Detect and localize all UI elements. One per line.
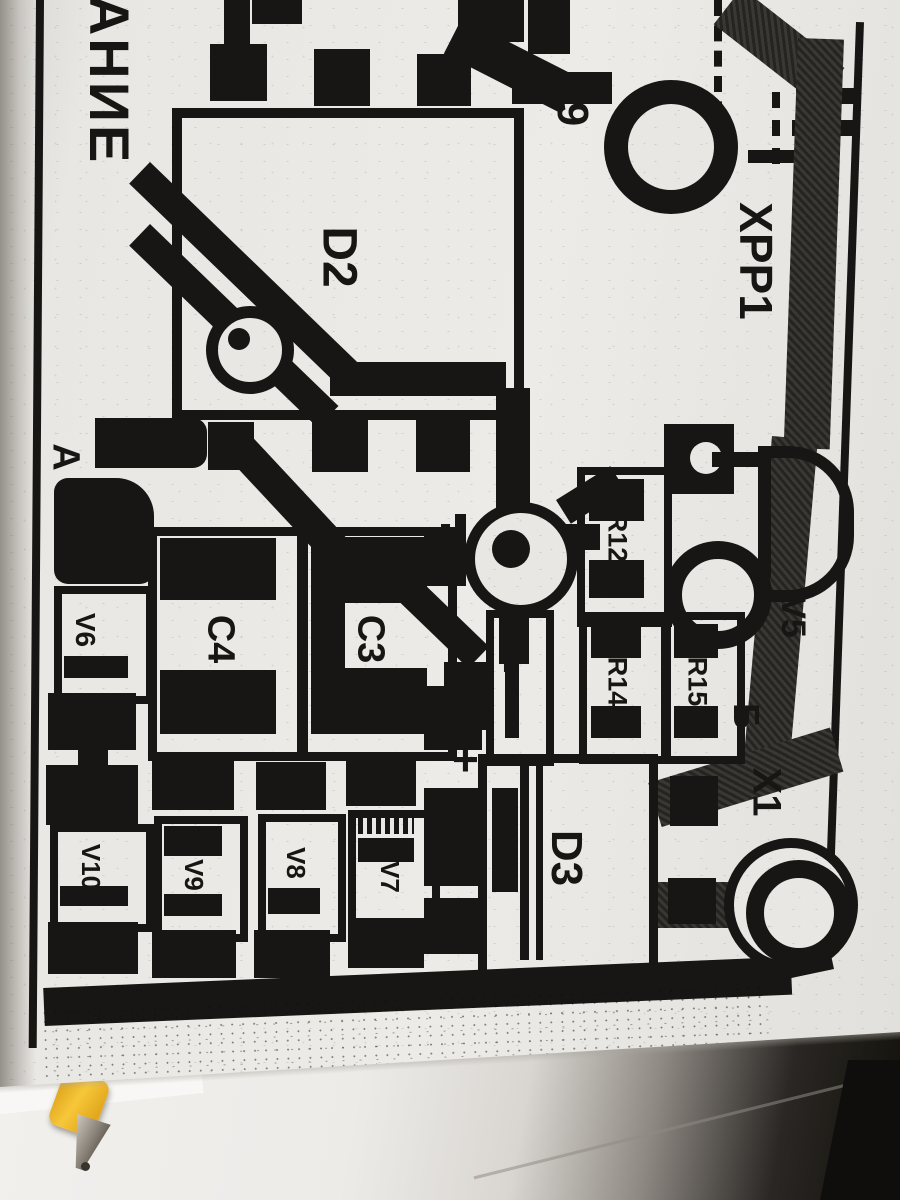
- c3-plate: [311, 668, 427, 734]
- solder-pad: [668, 878, 716, 924]
- label-d3: D3: [544, 830, 588, 886]
- component-v6: [54, 586, 154, 704]
- d3-fill: [492, 788, 518, 892]
- trace-blob: [54, 478, 154, 584]
- solder-pad: [254, 930, 330, 978]
- pcb-printed-page: ПИТАНИЕ 9 XPP1 D2: [0, 0, 900, 1100]
- trace: [496, 388, 530, 508]
- solder-pad: [46, 765, 138, 825]
- r15-pad: [674, 706, 718, 738]
- r14-pad: [591, 706, 641, 738]
- label-v10: V10: [78, 844, 104, 890]
- v9-pad: [164, 826, 222, 856]
- label-v6: V6: [71, 613, 99, 647]
- label-r3: R3: [499, 652, 521, 702]
- solder-pad: [528, 0, 570, 54]
- c4-plate: [160, 538, 276, 600]
- v9-pad: [164, 894, 222, 916]
- solder-pad: [256, 762, 326, 810]
- v6-pad: [64, 656, 128, 678]
- label-v9: V9: [181, 859, 207, 891]
- label-pin9: 9: [550, 102, 594, 126]
- label-c4: C4: [201, 615, 239, 664]
- c4-plate: [160, 670, 276, 734]
- photo-of-pcb-layout: ПИТАНИЕ 9 XPP1 D2: [0, 0, 900, 1200]
- x1-inner-ring: [746, 860, 852, 966]
- v7-hatch: [358, 818, 414, 834]
- label-point-a: A: [47, 443, 85, 470]
- v8-pad: [268, 888, 320, 914]
- solder-pad: [670, 776, 718, 826]
- solder-pad: [416, 419, 470, 472]
- r14-pad: [591, 624, 641, 658]
- c3-plate: [311, 600, 345, 670]
- solder-pad: [152, 930, 236, 978]
- via-center: [228, 328, 250, 350]
- via-ring: [206, 306, 294, 394]
- label-v5: V5: [776, 596, 810, 638]
- label-plus: +: [452, 736, 479, 782]
- trace: [512, 72, 612, 104]
- solder-pad: [210, 44, 267, 101]
- v5-lead: [712, 452, 762, 467]
- label-x1: X1: [746, 768, 786, 817]
- label-r12: R12: [603, 513, 630, 563]
- r15-pad: [674, 624, 718, 658]
- label-v7: V7: [377, 861, 403, 893]
- label-d2: D2: [315, 226, 363, 287]
- solder-pad: [152, 758, 234, 810]
- solder-pad: [252, 0, 302, 24]
- d3-stripe: [520, 764, 529, 960]
- solder-pad: [48, 922, 138, 974]
- label-c3: C3: [351, 615, 389, 664]
- solder-pad: [346, 756, 416, 806]
- pen-tip: [81, 1162, 90, 1171]
- via-center: [492, 530, 530, 568]
- solder-pad: [424, 528, 466, 586]
- solder-pad: [78, 750, 108, 766]
- label-r15: R15: [683, 657, 710, 707]
- solder-pad: [348, 918, 424, 968]
- r12-pad: [589, 560, 644, 598]
- trace: [95, 418, 207, 468]
- solder-pad: [424, 898, 480, 954]
- label-xpp1: XPP1: [733, 201, 779, 321]
- solder-pad: [312, 416, 368, 472]
- wide-trace: [784, 38, 844, 449]
- trace: [330, 362, 506, 396]
- solder-pad: [314, 49, 370, 106]
- label-power: ПИТАНИЕ: [77, 0, 137, 185]
- v7-pad: [358, 838, 414, 862]
- solder-pad: [48, 693, 136, 750]
- label-r14: R14: [603, 657, 630, 707]
- label-v8: V8: [283, 847, 309, 879]
- solder-pad: [424, 788, 478, 886]
